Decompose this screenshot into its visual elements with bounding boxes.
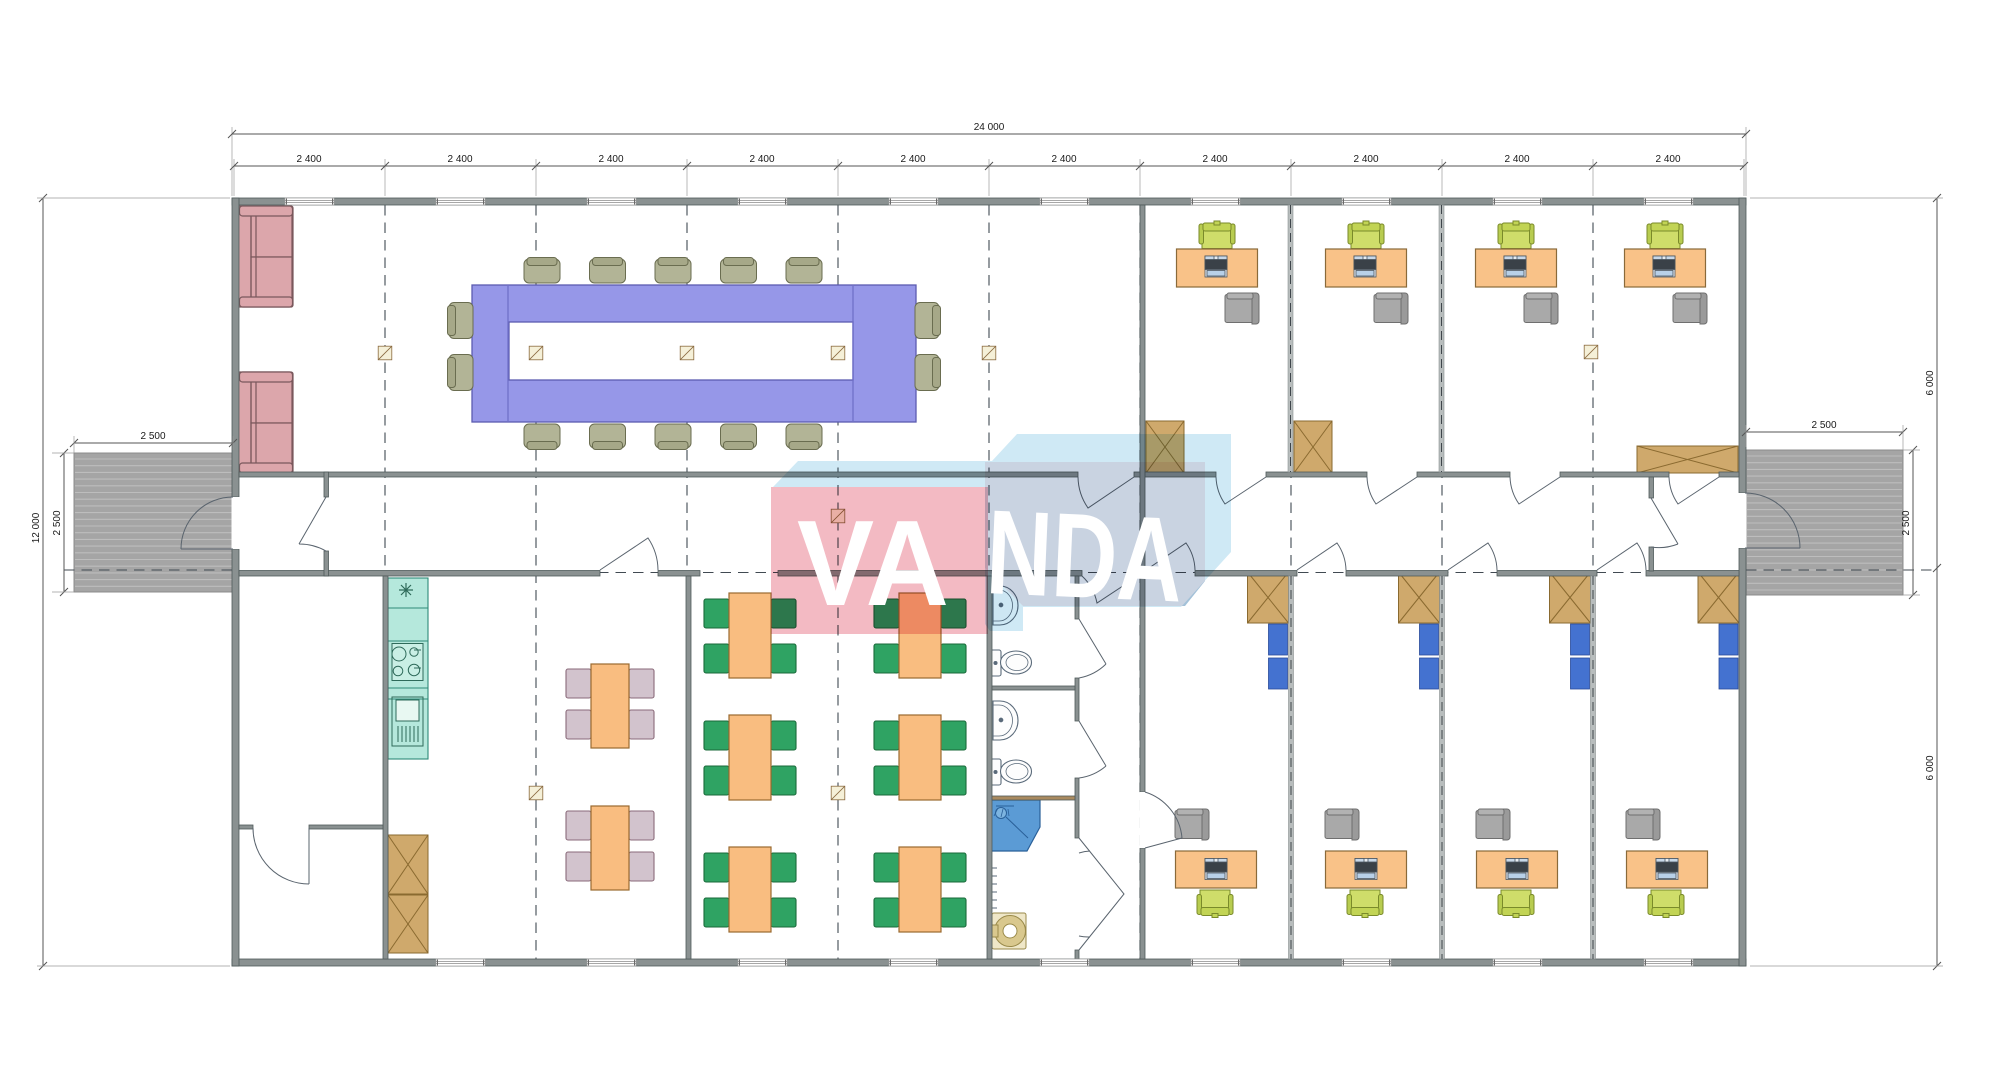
svg-text:2 400: 2 400	[1504, 154, 1529, 165]
svg-text:2 500: 2 500	[1901, 510, 1912, 535]
svg-text:VA: VA	[797, 495, 949, 631]
svg-text:2 500: 2 500	[52, 510, 63, 535]
svg-text:2 400: 2 400	[296, 154, 321, 165]
svg-text:2 500: 2 500	[1811, 420, 1836, 431]
svg-text:2 400: 2 400	[1655, 154, 1680, 165]
svg-text:12 000: 12 000	[31, 512, 42, 543]
svg-text:2 400: 2 400	[447, 154, 472, 165]
svg-text:2 400: 2 400	[749, 154, 774, 165]
svg-text:2 400: 2 400	[598, 154, 623, 165]
svg-text:2 400: 2 400	[900, 154, 925, 165]
svg-text:2 400: 2 400	[1202, 154, 1227, 165]
svg-text:6 000: 6 000	[1925, 755, 1936, 780]
svg-text:2 400: 2 400	[1353, 154, 1378, 165]
svg-text:2 400: 2 400	[1051, 154, 1076, 165]
svg-text:24 000: 24 000	[974, 122, 1005, 133]
svg-text:2 500: 2 500	[140, 431, 165, 442]
svg-text:6 000: 6 000	[1925, 370, 1936, 395]
svg-text:NDA: NDA	[984, 485, 1186, 627]
